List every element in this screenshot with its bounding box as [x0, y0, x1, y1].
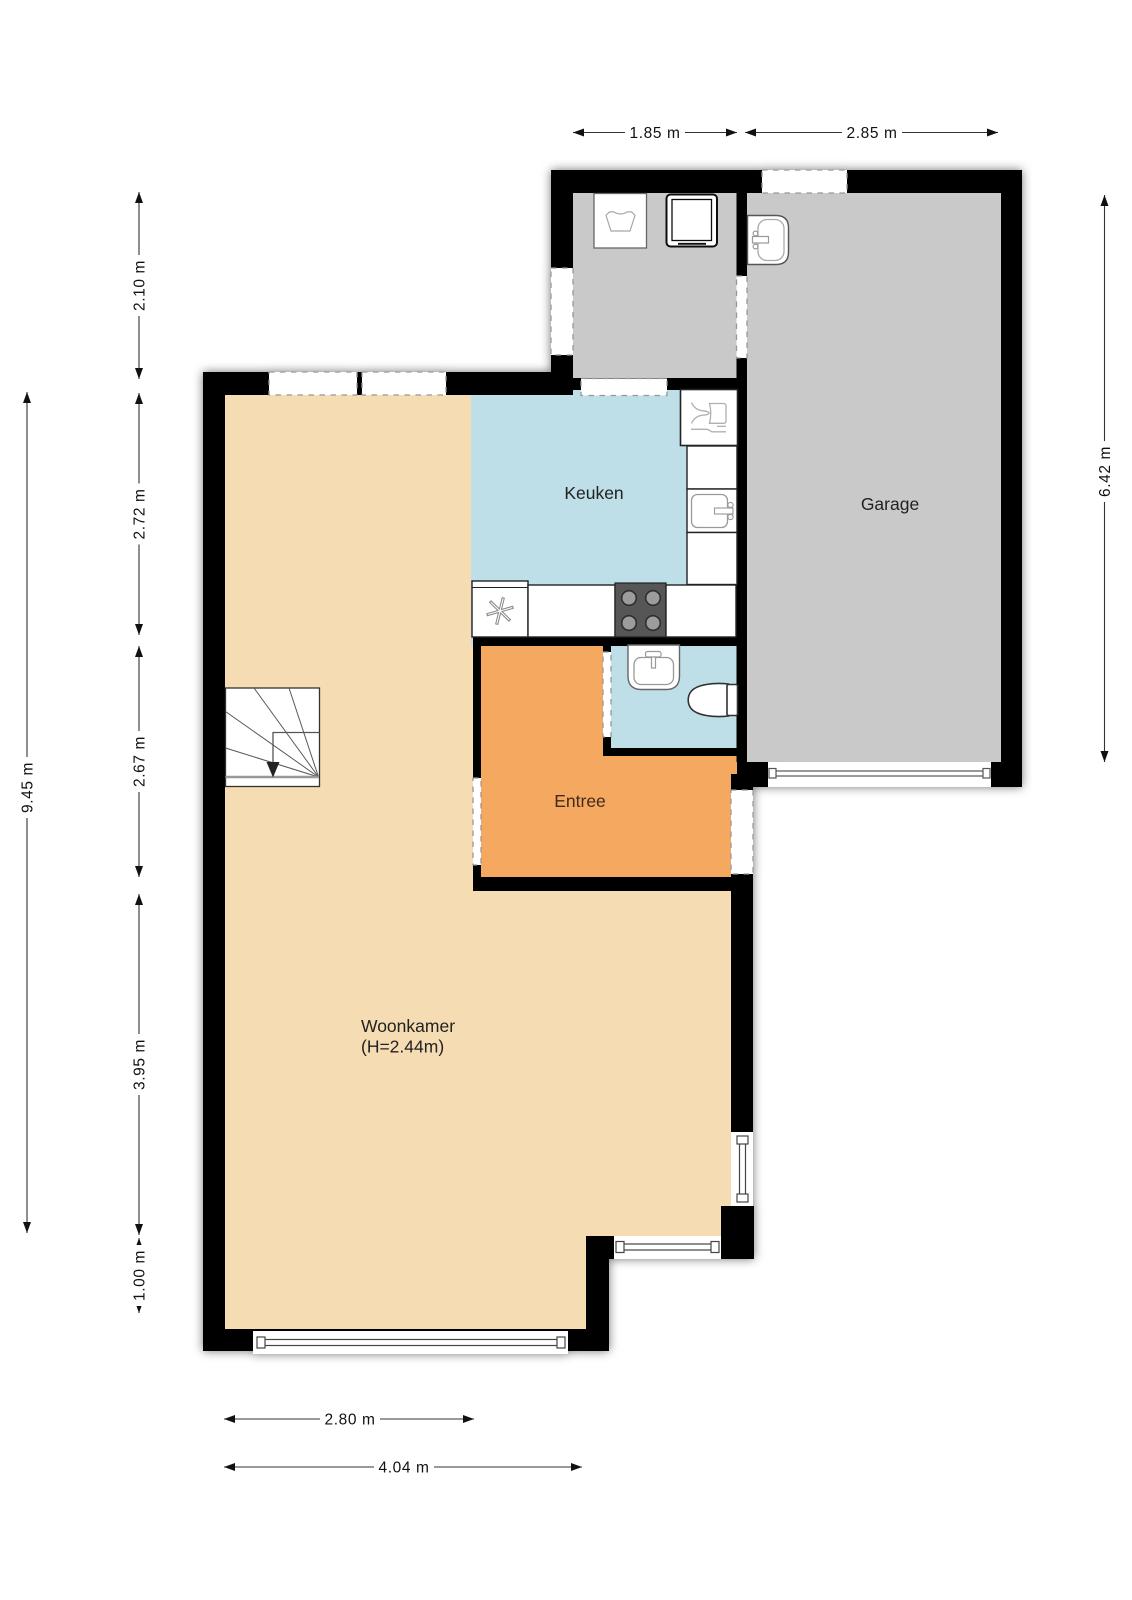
svg-text:2.67 m: 2.67 m — [132, 736, 149, 787]
svg-text:2.85 m: 2.85 m — [847, 125, 898, 142]
svg-text:Woonkamer: Woonkamer — [361, 1016, 455, 1036]
svg-text:2.80 m: 2.80 m — [325, 1412, 376, 1429]
svg-text:9.45 m: 9.45 m — [20, 762, 37, 813]
svg-text:4.04 m: 4.04 m — [379, 1460, 430, 1477]
svg-text:Keuken: Keuken — [564, 483, 623, 503]
svg-text:6.42 m: 6.42 m — [1097, 446, 1114, 497]
svg-text:Garage: Garage — [861, 494, 919, 514]
svg-text:2.72 m: 2.72 m — [132, 489, 149, 540]
svg-text:2.10 m: 2.10 m — [132, 260, 149, 311]
svg-text:Entree: Entree — [554, 791, 606, 811]
svg-text:1.85 m: 1.85 m — [630, 125, 681, 142]
svg-text:1.00 m: 1.00 m — [132, 1250, 149, 1301]
svg-text:3.95 m: 3.95 m — [132, 1039, 149, 1090]
svg-text:(H=2.44m): (H=2.44m) — [361, 1037, 444, 1057]
